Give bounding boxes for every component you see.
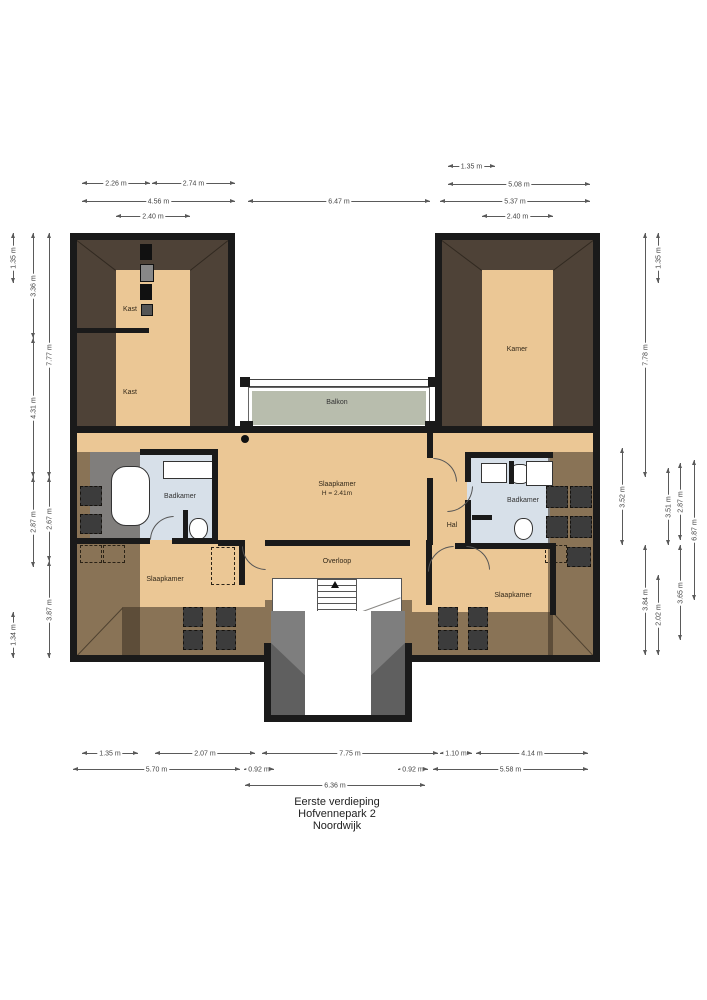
dimension-label: 7.75 m xyxy=(337,751,362,758)
balcony-top-rail xyxy=(248,379,430,387)
roof-hip-line xyxy=(76,240,115,271)
roof-hip-line xyxy=(553,240,594,271)
roof-window xyxy=(216,607,236,627)
dimension-label: 1.35 m xyxy=(656,245,663,270)
room-label-kamer: Kamer xyxy=(487,346,547,354)
dimension-line: 7.77 m xyxy=(49,233,50,477)
room-label-badkamer-left: Badkamer xyxy=(150,493,210,501)
dimension-line: 2.74 m xyxy=(152,183,235,184)
room-label-overloop: Overloop xyxy=(307,558,367,566)
dimension-line: 3.65 m xyxy=(680,545,681,640)
interior-wall xyxy=(427,478,433,545)
dormer-roof-slope-left xyxy=(271,643,305,715)
dimension-label: 7.78 m xyxy=(643,342,650,367)
roof-window xyxy=(468,630,488,650)
dimension-line: 5.58 m xyxy=(433,769,588,770)
roof-window xyxy=(567,547,591,567)
door-swing xyxy=(466,546,490,570)
dimension-label: 6.47 m xyxy=(326,199,351,206)
sink xyxy=(481,463,507,483)
room-label-balkon: Balkon xyxy=(307,399,367,407)
dimension-label: 3.87 m xyxy=(47,597,54,622)
dimension-label: 2.02 m xyxy=(656,602,663,627)
dimension-label: 0.92 m xyxy=(246,767,271,774)
left-wing xyxy=(70,233,235,433)
floorplan-page: { "title": { "line1": "Eerste verdieping… xyxy=(0,0,707,1000)
roof-hip-line xyxy=(441,240,482,271)
dimension-label: 5.58 m xyxy=(498,767,523,774)
shower xyxy=(526,461,553,486)
roof-window xyxy=(183,630,203,650)
roof-window xyxy=(183,607,203,627)
roof-window xyxy=(570,486,592,508)
dimension-line: 1.35 m xyxy=(658,233,659,283)
dimension-label: 2.40 m xyxy=(505,214,530,221)
dimension-label: 6.36 m xyxy=(322,783,347,790)
room-label-hal: Hal xyxy=(437,522,467,530)
interior-wall xyxy=(550,543,556,615)
stairwell-void-upper xyxy=(305,611,371,643)
dimension-label: 3.84 m xyxy=(643,587,650,612)
toilet xyxy=(514,518,533,540)
dimension-line: 1.34 m xyxy=(13,612,14,658)
dimension-line: 3.84 m xyxy=(645,545,646,655)
toilet xyxy=(189,518,208,540)
dimension-label: 1.34 m xyxy=(11,622,18,647)
dimension-label: 1.35 m xyxy=(97,751,122,758)
column-dot xyxy=(241,435,249,443)
interior-wall xyxy=(426,540,432,605)
dimension-label: 3.65 m xyxy=(678,580,685,605)
dimension-line: 4.56 m xyxy=(82,201,235,202)
roof-window xyxy=(468,607,488,627)
balcony-corner-post xyxy=(240,377,250,387)
room-label-badkamer-right: Badkamer xyxy=(493,497,553,505)
dimension-label: 5.37 m xyxy=(502,199,527,206)
dimension-label: 2.87 m xyxy=(678,489,685,514)
dimension-line: 4.14 m xyxy=(476,753,588,754)
closet-outline xyxy=(80,545,102,563)
dimension-label: 2.67 m xyxy=(47,506,54,531)
roof-window xyxy=(546,516,568,538)
dimension-line: 1.35 m xyxy=(13,233,14,283)
room-label-kast-top: Kast xyxy=(100,306,160,314)
dimension-line: 7.78 m xyxy=(645,233,646,477)
dimension-line: 1.35 m xyxy=(82,753,138,754)
dimension-label: 2.26 m xyxy=(103,181,128,188)
dimension-label: 2.74 m xyxy=(181,181,206,188)
dimension-label: 1.35 m xyxy=(11,245,18,270)
vanity-sink xyxy=(163,461,215,479)
dimension-line: 1.10 m xyxy=(440,753,472,754)
dimension-line: 3.52 m xyxy=(622,448,623,545)
door-swing xyxy=(433,458,457,482)
duct-shaft xyxy=(140,244,152,260)
plan-title-floor: Eerste verdieping xyxy=(0,797,674,809)
stair-direction-arrow xyxy=(331,581,339,588)
dimension-label: 4.31 m xyxy=(31,395,38,420)
stairwell-void xyxy=(305,643,371,715)
dimension-label: 2.40 m xyxy=(140,214,165,221)
dimension-line: 1.35 m xyxy=(448,166,495,167)
roof-hip-line xyxy=(190,240,228,271)
balcony-corner-post xyxy=(428,377,438,387)
room-label-slaapkamer-main-height: H = 2.41m xyxy=(287,490,387,497)
dimension-label: 6.87 m xyxy=(692,517,699,542)
interior-wall xyxy=(140,449,218,455)
room-label-slaapkamer-left: Slaapkamer xyxy=(135,576,195,584)
dimension-line: 2.07 m xyxy=(155,753,255,754)
duct-shaft xyxy=(140,264,154,282)
dimension-line: 5.70 m xyxy=(73,769,240,770)
closet-outline xyxy=(211,547,235,585)
dormer-roof-slope-right xyxy=(371,643,405,715)
door-swing xyxy=(242,546,266,570)
dimension-line: 3.51 m xyxy=(668,468,669,545)
dimension-label: 1.35 m xyxy=(459,164,484,171)
plan-title-address: Hofvennepark 2 xyxy=(0,809,674,821)
dimension-line: 3.36 m xyxy=(33,233,34,338)
dimension-line: 2.87 m xyxy=(33,477,34,567)
room-label-slaapkamer-right: Slaapkamer xyxy=(483,592,543,600)
roof-window xyxy=(438,630,458,650)
dimension-label: 2.07 m xyxy=(192,751,217,758)
dimension-label: 2.87 m xyxy=(31,509,38,534)
dimension-label: 1.10 m xyxy=(443,751,468,758)
interior-wall xyxy=(183,510,188,540)
interior-wall xyxy=(212,449,218,544)
dimension-label: 3.51 m xyxy=(666,494,673,519)
dimension-line: 4.31 m xyxy=(33,338,34,477)
dimension-line: 5.08 m xyxy=(448,184,590,185)
partition-wall xyxy=(77,328,149,333)
roof-window xyxy=(80,514,102,534)
dimension-line: 3.87 m xyxy=(49,561,50,658)
duct-shaft xyxy=(140,284,152,300)
dimension-label: 3.36 m xyxy=(31,273,38,298)
roof-window xyxy=(80,486,102,506)
dimension-line: 7.75 m xyxy=(262,753,438,754)
dimension-line: 2.40 m xyxy=(482,216,553,217)
dimension-line: 0.92 m xyxy=(398,769,428,770)
dimension-line: 2.02 m xyxy=(658,575,659,655)
bathtub xyxy=(111,466,150,526)
dimension-line: 5.37 m xyxy=(440,201,590,202)
roof-window xyxy=(438,607,458,627)
dimension-line: 2.87 m xyxy=(680,463,681,540)
room-label-kast-bottom: Kast xyxy=(100,389,160,397)
left-wing-floor-strip xyxy=(116,270,190,426)
roof-window xyxy=(570,516,592,538)
plan-title-city: Noordwijk xyxy=(0,821,674,833)
interior-wall xyxy=(77,538,150,544)
balcony xyxy=(248,387,430,429)
interior-wall xyxy=(265,540,410,546)
dimension-line: 2.26 m xyxy=(82,183,150,184)
room-label-slaapkamer-main: Slaapkamer xyxy=(287,481,387,489)
dimension-line: 6.47 m xyxy=(248,201,430,202)
dimension-line: 0.92 m xyxy=(244,769,274,770)
dimension-label: 0.92 m xyxy=(400,767,425,774)
closet-outline xyxy=(103,545,125,563)
dimension-label: 4.56 m xyxy=(146,199,171,206)
dimension-label: 3.52 m xyxy=(620,484,627,509)
dimension-label: 7.77 m xyxy=(47,342,54,367)
interior-wall xyxy=(172,538,218,544)
dimension-line: 6.36 m xyxy=(245,785,425,786)
roof-window xyxy=(216,630,236,650)
right-wing xyxy=(435,233,600,433)
dimension-line: 2.40 m xyxy=(116,216,190,217)
dormer xyxy=(264,643,412,722)
dimension-label: 4.14 m xyxy=(519,751,544,758)
interior-wall xyxy=(472,515,492,520)
dimension-line: 6.87 m xyxy=(694,460,695,600)
interior-wall xyxy=(509,461,514,484)
dimension-label: 5.08 m xyxy=(506,182,531,189)
dimension-line: 2.67 m xyxy=(49,477,50,561)
interior-wall xyxy=(465,452,553,458)
interior-wall xyxy=(427,433,433,458)
dimension-label: 5.70 m xyxy=(144,767,169,774)
